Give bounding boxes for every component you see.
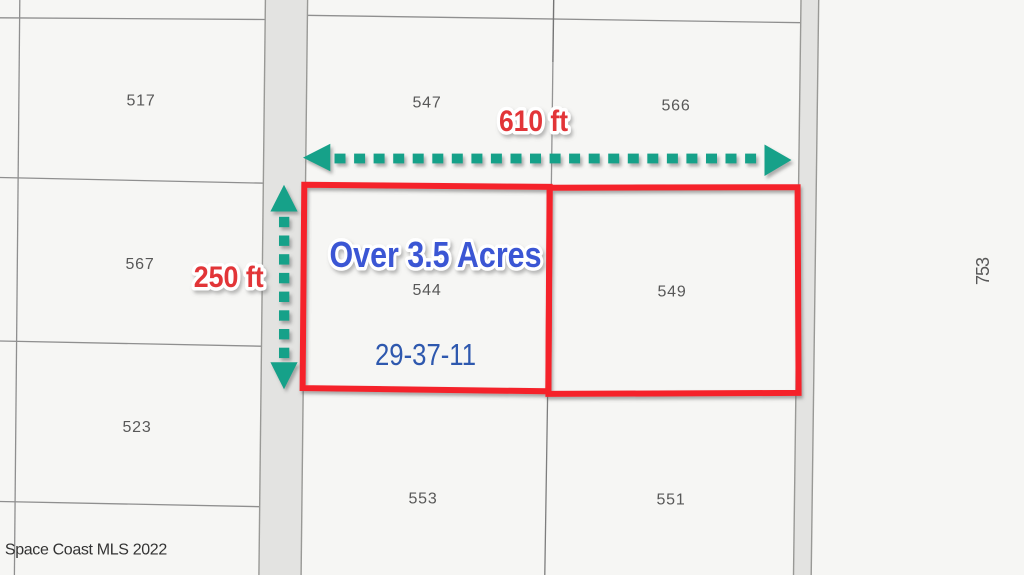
svg-text:567: 567 — [125, 256, 154, 273]
svg-text:753: 753 — [973, 257, 993, 285]
svg-text:544: 544 — [412, 282, 441, 299]
svg-text:610 ft: 610 ft — [499, 105, 568, 138]
svg-text:553: 553 — [408, 491, 437, 508]
svg-text:549: 549 — [657, 284, 686, 301]
svg-text:250 ft: 250 ft — [194, 261, 264, 294]
svg-text:Over 3.5 Acres: Over 3.5 Acres — [330, 234, 542, 275]
svg-text:Space Coast MLS 2022: Space Coast MLS 2022 — [5, 542, 167, 559]
svg-text:523: 523 — [122, 419, 151, 436]
svg-text:517: 517 — [126, 93, 155, 110]
svg-text:29-37-11: 29-37-11 — [375, 337, 476, 372]
svg-text:566: 566 — [661, 98, 690, 115]
svg-text:547: 547 — [412, 95, 441, 112]
svg-text:551: 551 — [656, 492, 685, 509]
